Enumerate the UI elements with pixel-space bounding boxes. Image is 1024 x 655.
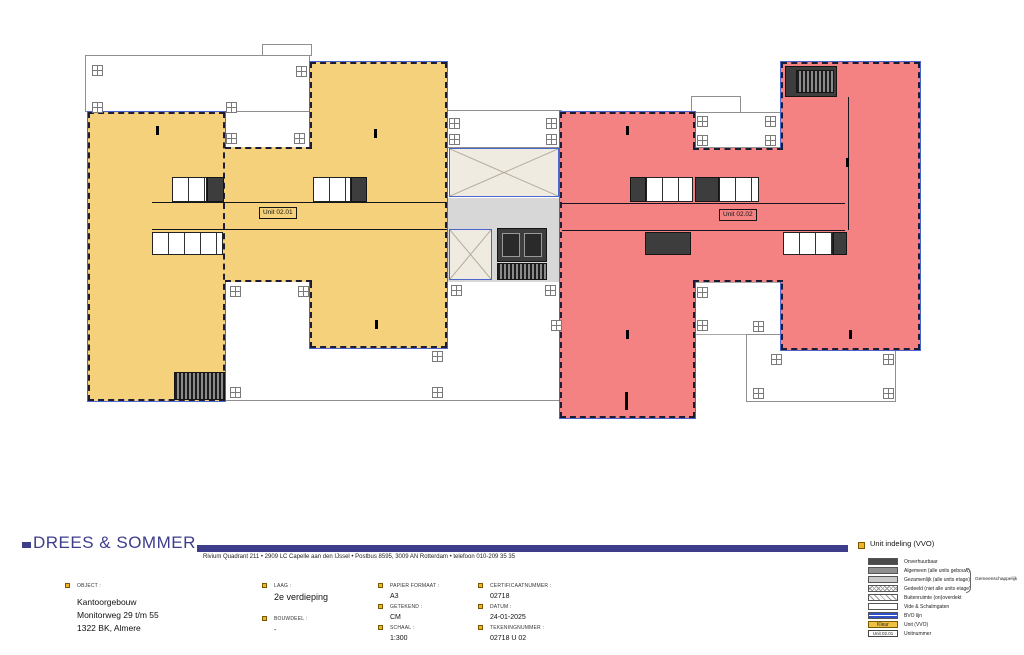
logo-bar <box>197 545 848 552</box>
unit-02-01-mid-block <box>310 62 447 348</box>
grid-marker <box>294 133 305 144</box>
grid-marker <box>883 354 894 365</box>
grid-marker <box>296 66 307 77</box>
grid-marker <box>546 134 557 145</box>
object-line3: 1322 BK, Almere <box>77 622 141 635</box>
field-marker <box>378 583 383 588</box>
legend-swatch-gedeeld <box>868 585 898 592</box>
toilet-rooms <box>646 177 693 202</box>
grid-marker <box>449 118 460 129</box>
tekening-value: 02718 U 02 <box>490 635 526 642</box>
corridor-wall <box>152 202 447 203</box>
door-tick <box>849 330 852 339</box>
grid-marker <box>697 135 708 146</box>
certificaat-value: 02718 <box>490 593 509 600</box>
field-marker <box>478 604 483 609</box>
shaft-core <box>630 177 646 202</box>
field-marker <box>65 583 70 588</box>
grid-marker <box>226 133 237 144</box>
legend-swatch-unitnummer: Unit 02.01 <box>868 630 898 637</box>
grid-marker <box>697 116 708 127</box>
unit-02-02-right-block <box>781 62 920 350</box>
outline-zone-top-left <box>85 55 310 112</box>
outline-zone-between-red <box>695 282 782 335</box>
toilet-rooms <box>313 177 351 202</box>
field-marker <box>478 625 483 630</box>
grid-marker <box>545 285 556 296</box>
corridor-wall <box>562 230 845 231</box>
field-marker <box>262 583 267 588</box>
getekend-label: GETEKEND : <box>390 604 422 610</box>
logo-square <box>22 542 31 548</box>
grid-marker <box>92 65 103 76</box>
toilet-rooms <box>783 232 833 255</box>
door-tick <box>374 129 377 138</box>
grid-marker <box>546 118 557 129</box>
grid-marker <box>230 286 241 297</box>
schaal-value: 1:300 <box>390 635 408 642</box>
legend-group-label: Gemeenschappelijk <box>975 577 1017 582</box>
outline-zone-right-notch-top <box>691 96 741 113</box>
grid-marker <box>697 287 708 298</box>
bouwdeel-label: BOUWDEEL : <box>274 616 307 622</box>
legend-swatch-buitenruimte <box>868 594 898 601</box>
legend-swatch-algemeen <box>868 567 898 574</box>
grid-marker <box>765 116 776 127</box>
legend-label: Unit (VVO) <box>904 622 928 628</box>
vide-lower <box>449 229 492 280</box>
shaft-core <box>695 177 719 202</box>
stair-core-right-top <box>785 66 837 97</box>
grid-marker <box>449 134 460 145</box>
legend-label: Vide & Schalmgaten <box>904 604 949 610</box>
shaft-core <box>645 232 691 255</box>
outline-zone-center-top <box>447 110 562 148</box>
legend-label: Gezamenlijk (alle units etage) <box>904 577 970 583</box>
grid-marker <box>883 388 894 399</box>
grid-marker <box>432 351 443 362</box>
object-line1: Kantoorgebouw <box>77 596 137 609</box>
door-tick <box>156 126 159 135</box>
vide-upper <box>449 148 559 197</box>
unit-02-02-left-block <box>560 112 695 418</box>
legend-label: Algemeen (alle units gebouw) <box>904 568 970 574</box>
stair-left-bottom <box>174 372 225 400</box>
laag-label: LAAG : <box>274 583 291 589</box>
grid-marker <box>753 321 764 332</box>
unit-02-01-left-block <box>88 112 225 401</box>
legend-label: Unitnummer <box>904 631 931 637</box>
datum-label: DATUM : <box>490 604 512 610</box>
shaft-core <box>207 177 224 202</box>
field-marker <box>262 616 267 621</box>
legend-swatch-vide <box>868 603 898 610</box>
legend-swatch-unit-vvo: Kleur <box>868 621 898 628</box>
door-tick <box>626 126 629 135</box>
corridor-wall <box>152 229 447 230</box>
central-elevator-core <box>497 228 547 262</box>
grid-marker <box>432 387 443 398</box>
toilet-rooms <box>719 177 759 202</box>
object-label: OBJECT : <box>77 583 101 589</box>
door-tick <box>626 330 629 339</box>
unit-02-02-label: Unit 02.02 <box>719 209 757 221</box>
grid-marker <box>771 354 782 365</box>
door-tick <box>846 158 849 167</box>
legend-swatch-onverhuurbaar <box>868 558 898 565</box>
grid-marker <box>451 285 462 296</box>
field-marker <box>478 583 483 588</box>
grid-marker <box>92 102 103 113</box>
getekend-value: CM <box>390 614 401 621</box>
legend-swatch-gezamenlijk <box>868 576 898 583</box>
shaft-core <box>833 232 847 255</box>
grid-marker <box>230 387 241 398</box>
schaal-label: SCHAAL : <box>390 625 414 631</box>
object-line2: Monitorweg 29 t/m 55 <box>77 609 159 622</box>
bouwdeel-value: - <box>274 627 276 634</box>
legend-label: Buitenruimte (on)overdekt <box>904 595 962 601</box>
shaft-core <box>351 177 367 202</box>
legend-label: Gedeeld (niet alle units etage) <box>904 586 971 592</box>
toilet-rooms <box>152 232 223 255</box>
laag-value: 2e verdieping <box>274 592 328 602</box>
legend-label: Onverhuurbaar <box>904 559 938 565</box>
unit-02-01-label: Unit 02.01 <box>259 207 297 219</box>
papier-label: PAPIER FORMAAT : <box>390 583 439 589</box>
company-address: Rivium Quadrant 211 • 2909 LC Capelle aa… <box>203 554 515 560</box>
papier-value: A3 <box>390 593 399 600</box>
grid-marker <box>298 286 309 297</box>
datum-value: 24-01-2025 <box>490 614 526 621</box>
field-marker <box>378 604 383 609</box>
field-marker <box>378 625 383 630</box>
grid-marker <box>551 320 562 331</box>
door-tick <box>625 392 628 410</box>
toilet-rooms <box>172 177 207 202</box>
grid-marker <box>226 102 237 113</box>
grid-marker <box>697 320 708 331</box>
central-stair <box>497 263 547 280</box>
door-tick <box>375 320 378 329</box>
legend-swatch-bvo-lijn <box>868 612 898 619</box>
company-logo: DREES & SOMMER <box>33 533 196 553</box>
grid-marker <box>753 388 764 399</box>
legend-group-bracket <box>966 568 971 593</box>
grid-marker <box>765 135 776 146</box>
legend-title: Unit indeling (VVO) <box>870 539 934 548</box>
tekening-label: TEKENINGNUMMER : <box>490 625 544 631</box>
certificaat-label: CERTIFICAATNUMMER : <box>490 583 551 589</box>
legend-title-square <box>858 542 865 549</box>
outline-zone-top-left-notch <box>262 44 312 56</box>
corridor-wall <box>562 203 845 204</box>
legend-label: BVO lijn <box>904 613 922 619</box>
